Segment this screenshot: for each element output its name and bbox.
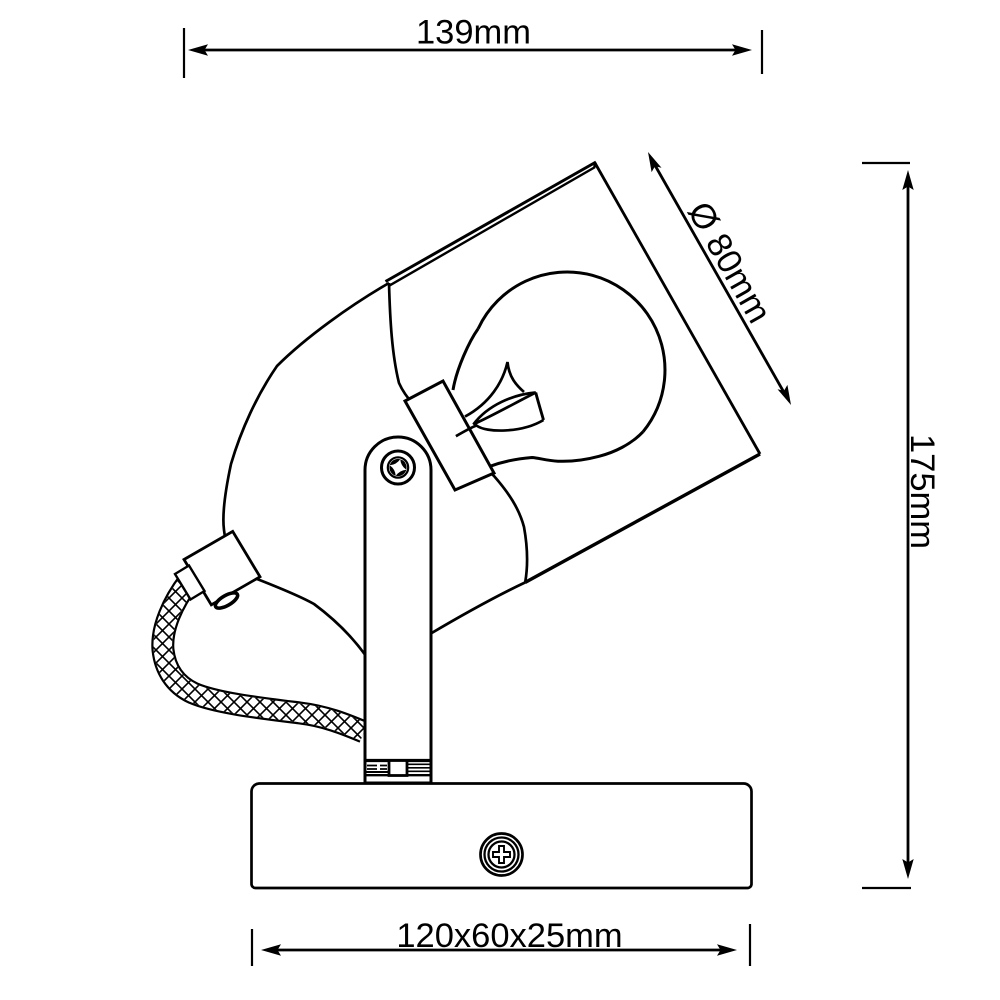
svg-text:120x60x25mm: 120x60x25mm — [396, 917, 622, 955]
svg-text:139mm: 139mm — [416, 14, 531, 52]
svg-text:175mm: 175mm — [903, 434, 941, 549]
